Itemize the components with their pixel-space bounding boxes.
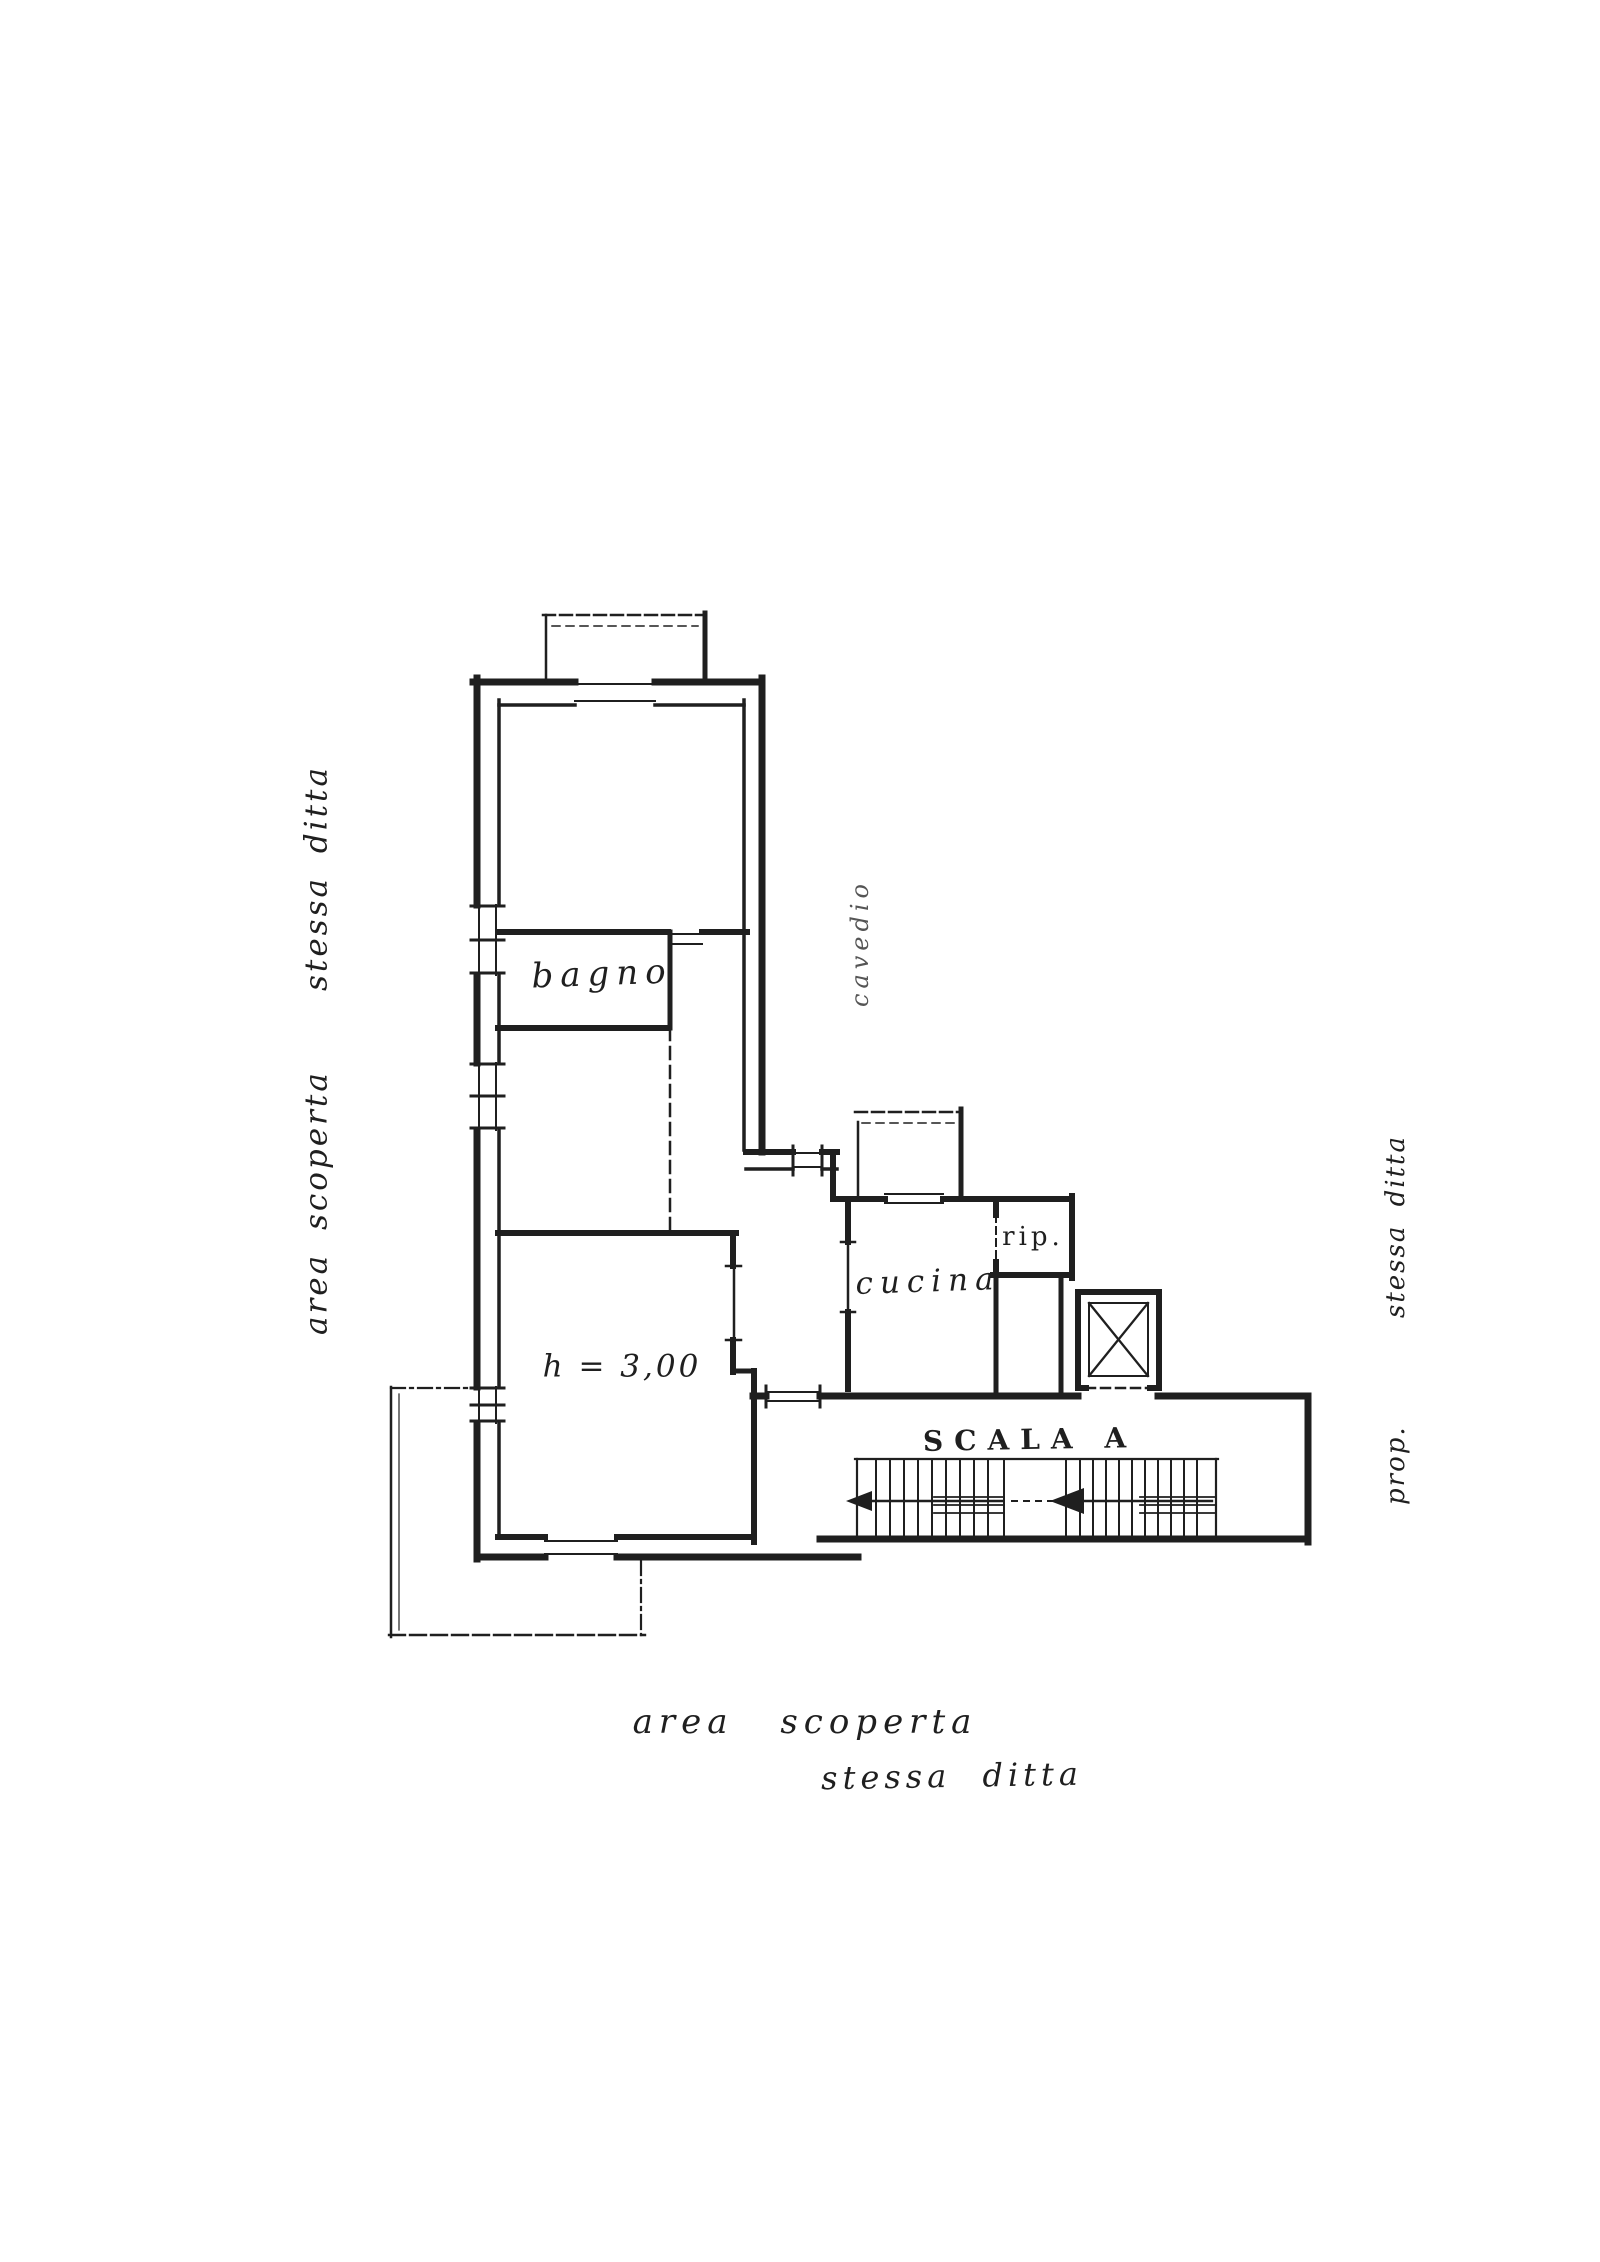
- right-margin-note-line1: prop.: [1383, 1425, 1409, 1505]
- bottom-margin-note-line1: area scoperta: [633, 1705, 978, 1739]
- right-margin-note-line2: stessa ditta: [1383, 1135, 1409, 1318]
- north-balcony: [543, 613, 705, 681]
- room-label-cavedio: cavedio: [848, 879, 872, 1007]
- left-margin-note-line1: area scoperta: [302, 1070, 333, 1335]
- stair-risers-right: [1080, 1461, 1197, 1535]
- room-label-rip: rip.: [1002, 1224, 1064, 1250]
- staircase-label: SCALA A: [923, 1424, 1138, 1456]
- room-height-note: h = 3,00: [543, 1352, 702, 1383]
- left-margin-note-line2: stessa ditta: [302, 765, 333, 991]
- inner-wall-lines: [499, 700, 837, 1537]
- elevator-shaft: [1078, 1292, 1159, 1388]
- staircase: [846, 1459, 1218, 1536]
- outer-walls: [473, 678, 1308, 1559]
- kitchen-balcony: [855, 1109, 962, 1197]
- doors: [545, 684, 996, 1554]
- room-label-cucina: cucina: [855, 1264, 1001, 1300]
- south-terrace: [389, 1387, 645, 1637]
- left-margin-note: area scoperta stessa ditta: [302, 765, 333, 1335]
- stair-risers-left: [876, 1461, 988, 1535]
- elevator-x-mark: [1089, 1303, 1148, 1376]
- room-label-bagno: bagno: [531, 955, 673, 994]
- bottom-margin-note-line2: stessa ditta: [821, 1758, 1083, 1795]
- floor-plan-canvas: bagno cavedio cucina rip. h = 3,00 SCALA…: [0, 0, 1600, 2262]
- stair-direction-arrow: [846, 1491, 872, 1511]
- floor-plan-line-drawing: [0, 0, 1600, 2262]
- scanned-floor-plan-page: { "page": { "paper_color": "#ffffff", "i…: [0, 0, 1600, 2262]
- right-margin-note: prop. stessa ditta: [1383, 1135, 1409, 1505]
